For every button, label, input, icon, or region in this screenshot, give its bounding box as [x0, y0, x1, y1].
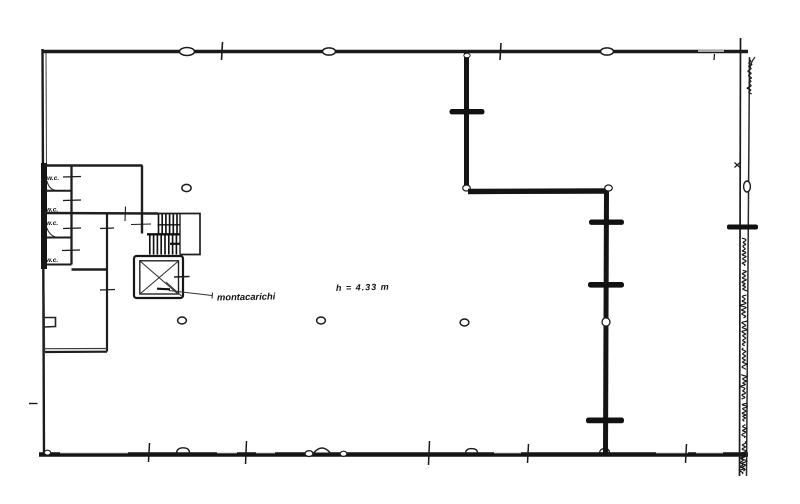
svg-text:w.c.: w.c.	[46, 257, 58, 264]
svg-text:w.c.: w.c.	[46, 207, 58, 214]
svg-text:w.c.: w.c.	[47, 175, 59, 182]
svg-text:h = 4.33 m: h = 4.33 m	[336, 282, 390, 293]
svg-text:w.c.: w.c.	[46, 220, 58, 227]
svg-text:montacarichi: montacarichi	[217, 290, 276, 302]
